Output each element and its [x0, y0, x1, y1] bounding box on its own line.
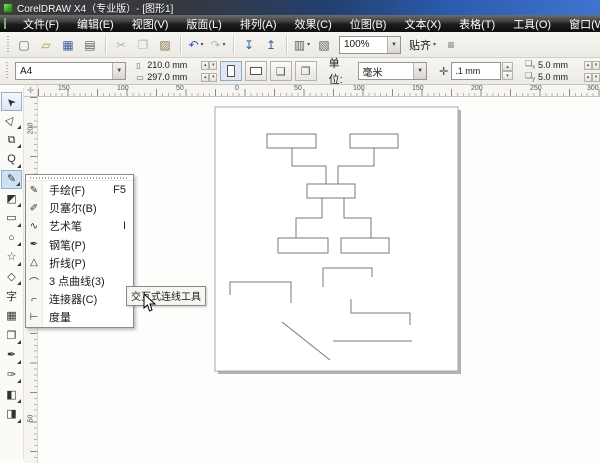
welcome-screen-button[interactable]: ▧ — [313, 34, 335, 56]
interactive-fill-tool-icon: ◨ — [6, 409, 16, 420]
nudge-offset-icon: ✛ — [439, 65, 448, 78]
pick-tool-icon: ➤ — [4, 94, 18, 108]
toolbar-separator — [233, 36, 234, 54]
tooltip-text: 交互式连线工具 — [131, 292, 201, 303]
duplicate-x-input[interactable]: 5.0 mm — [538, 60, 582, 70]
ruler-label: 50 — [176, 85, 184, 92]
menu-item-layout[interactable]: 版面(L) — [177, 15, 230, 33]
rectangle-tool-icon: ▭ — [6, 213, 16, 224]
save-icon: ▦ — [62, 39, 73, 51]
flyout-item-polyline[interactable]: △折线(P) — [26, 254, 133, 272]
property-bar-grip[interactable] — [5, 62, 10, 80]
menu-item-arrange[interactable]: 排列(A) — [231, 15, 286, 33]
polygon-tool[interactable]: ☆ — [1, 248, 22, 268]
flyout-item-shortcut: I — [123, 220, 133, 232]
flyout-item-pen[interactable]: ✒钢笔(P) — [26, 236, 133, 254]
cut-icon: ✂ — [116, 39, 126, 51]
paper-width-spinner[interactable]: ▴▾ — [201, 61, 217, 70]
ruler-label: 100 — [353, 85, 365, 92]
flyout-item-label: 度量 — [43, 309, 126, 325]
duplicate-x-icon: ❏x — [525, 59, 538, 71]
toolbar-separator — [180, 36, 181, 54]
eyedropper-tool[interactable]: ✒ — [1, 346, 22, 366]
crop-tool[interactable]: ⧉ — [1, 131, 22, 151]
flyout-corner-icon — [17, 223, 21, 227]
menu-item-tools[interactable]: 工具(O) — [504, 15, 560, 33]
curve-tools-flyout: ✎手绘(F)F5✐贝塞尔(B)∿艺术笔I✒钢笔(P)△折线(P)⌒3 点曲线(3… — [25, 174, 134, 328]
zoom-tool-icon: Q — [7, 154, 16, 165]
print-icon: ▤ — [84, 39, 95, 51]
table-tool-icon: ▦ — [6, 311, 16, 322]
paper-width-input[interactable]: 210.0 mm — [147, 60, 199, 70]
blend-tool[interactable]: ❐ — [1, 327, 22, 347]
text-tool[interactable]: 字 — [1, 287, 22, 307]
eyedropper-tool-icon: ✒ — [7, 350, 16, 361]
duplicate-x-spinner[interactable]: ▴▾ — [584, 61, 600, 70]
units-label: 单位: — [329, 55, 354, 87]
polygon-tool-icon: ☆ — [7, 252, 17, 263]
menu-item-file[interactable]: 文件(F) — [14, 15, 68, 33]
paper-height-spinner[interactable]: ▴▾ — [201, 73, 217, 82]
coreldraw-logo-icon — [3, 3, 13, 13]
toolbox: ➤▷⧉Q✎◩▭○☆◇字▦❐✒✑◧◨ — [0, 88, 24, 460]
ruler-label: 50 — [28, 412, 35, 426]
blend-tool-icon: ❐ — [7, 331, 17, 342]
ruler-label: 0 — [235, 85, 239, 92]
ruler-label: 150 — [58, 85, 70, 92]
current-page-button[interactable]: ❐ — [295, 61, 317, 81]
toolbar-separator — [286, 36, 287, 54]
chevron-down-icon[interactable]: ▾ — [223, 41, 226, 48]
flyout-item-connector[interactable]: ⌐连接器(C) — [26, 290, 133, 308]
smart-fill-tool[interactable]: ◩ — [1, 189, 22, 209]
text-tool-icon: 字 — [6, 292, 17, 303]
zoom-tool[interactable]: Q — [1, 150, 22, 170]
new-document-button[interactable]: ▢ — [13, 34, 35, 56]
flyout-item-label: 贝塞尔(B) — [43, 200, 126, 216]
export-icon: ↥ — [266, 39, 276, 51]
ruler-label: 100 — [117, 85, 129, 92]
chevron-down-icon[interactable]: ▾ — [201, 41, 204, 48]
menu-item-edit[interactable]: 编辑(E) — [68, 15, 123, 33]
pick-tool[interactable]: ➤ — [1, 92, 22, 111]
interactive-fill-tool[interactable]: ◨ — [1, 405, 22, 425]
document-icon[interactable] — [4, 18, 6, 29]
flyout-corner-icon — [17, 164, 21, 168]
artistic-media-icon: ∿ — [26, 217, 43, 235]
application-launcher-button[interactable]: ▥▾ — [291, 34, 313, 56]
menu-item-text[interactable]: 文本(X) — [395, 15, 450, 33]
toolbar-grip[interactable] — [5, 36, 10, 54]
options-button[interactable]: ≡ — [440, 34, 462, 56]
cut-button: ✂ — [110, 34, 132, 56]
duplicate-y-icon: ❏y — [525, 71, 538, 83]
connector-icon: ⌐ — [26, 290, 43, 308]
ruler-label: 150 — [412, 85, 424, 92]
drawing-page[interactable] — [215, 107, 458, 371]
nudge-offset-spinner[interactable]: ▴▾ — [502, 62, 513, 80]
units-value: 毫米 — [359, 64, 414, 79]
three-point-curve-icon: ⌒ — [26, 272, 43, 290]
new-document-icon: ▢ — [18, 39, 29, 51]
freehand-tool[interactable]: ✎ — [1, 170, 22, 190]
workspace: ➤▷⧉Q✎◩▭○☆◇字▦❐✒✑◧◨ ✛ 15010050050100150200… — [0, 85, 600, 463]
flyout-corner-icon — [17, 242, 21, 246]
ruler-origin[interactable]: ✛ — [24, 85, 38, 97]
copy-icon: ❐ — [138, 39, 149, 51]
fill-tool-icon: ◧ — [6, 390, 16, 401]
tooltip: 交互式连线工具 — [126, 286, 206, 306]
menu-item-bitmaps[interactable]: 位图(B) — [341, 15, 396, 33]
crop-tool-icon: ⧉ — [8, 135, 16, 146]
polyline-icon: △ — [26, 254, 43, 272]
ruler-label: 200 — [28, 122, 35, 136]
flyout-corner-icon — [17, 144, 21, 148]
all-pages-button[interactable]: ❏ — [270, 61, 292, 81]
flyout-corner-icon — [17, 379, 21, 383]
flyout-corner-icon — [17, 419, 21, 423]
print-button[interactable]: ▤ — [79, 34, 101, 56]
outline-tool-icon: ✑ — [7, 370, 16, 381]
bezier-icon: ✐ — [26, 199, 43, 217]
import-button[interactable]: ↧ — [238, 34, 260, 56]
chevron-down-icon[interactable]: ▾ — [307, 41, 310, 48]
paper-height-icon: ▭ — [136, 73, 147, 82]
open-button[interactable]: ▱ — [35, 34, 57, 56]
flyout-corner-icon — [17, 262, 21, 266]
flyout-item-label: 折线(P) — [43, 255, 126, 271]
flyout-item-artistic-media[interactable]: ∿艺术笔I — [26, 217, 133, 235]
flyout-item-dimension[interactable]: ⊢度量 — [26, 308, 133, 326]
pen-icon: ✒ — [26, 236, 43, 254]
flyout-corner-icon — [17, 203, 21, 207]
standard-toolbar: ▢▱▦▤✂❐▨↶▾↷▾↧↥▥▾▧100%▼贴齐▾≡ — [0, 32, 600, 58]
flyout-item-freehand[interactable]: ✎手绘(F)F5 — [26, 181, 133, 199]
flyout-corner-icon — [17, 399, 21, 403]
open-icon: ▱ — [41, 39, 50, 51]
menu-item-view[interactable]: 视图(V) — [123, 15, 178, 33]
window-title: CorelDRAW X4（专业版）- [图形1] — [17, 0, 173, 15]
menu-item-window[interactable]: 窗口(W) — [560, 15, 600, 33]
flyout-corner-icon — [17, 340, 21, 344]
ruler-label: 300 — [587, 85, 599, 92]
welcome-screen-icon: ▧ — [318, 39, 329, 51]
landscape-icon — [250, 67, 262, 75]
property-bar: A4 ▼ ▯ 210.0 mm ▴▾ ▭ 297.0 mm ▴▾ ❏ ❐ 单位:… — [0, 58, 600, 85]
chevron-down-icon[interactable]: ▼ — [112, 63, 125, 79]
flyout-item-shortcut: F5 — [113, 184, 133, 196]
cursor-arrow — [143, 293, 157, 313]
dimension-icon: ⊢ — [26, 308, 43, 326]
freehand-icon: ✎ — [26, 181, 43, 199]
flyout-corner-icon — [17, 360, 21, 364]
current-page-icon: ❐ — [301, 65, 311, 78]
ruler-origin-icon: ✛ — [27, 86, 34, 95]
landscape-button[interactable] — [245, 61, 267, 81]
zoom-level-value: 100% — [340, 39, 387, 50]
undo-icon: ↶ — [188, 39, 198, 51]
menu-item-effects[interactable]: 效果(C) — [286, 15, 341, 33]
import-icon: ↧ — [244, 39, 254, 51]
portrait-button[interactable] — [220, 61, 242, 81]
flyout-corner-icon — [17, 281, 21, 285]
flyout-item-label: 连接器(C) — [43, 291, 126, 307]
paper-dimensions: ▯ 210.0 mm ▴▾ ▭ 297.0 mm ▴▾ — [136, 60, 217, 83]
ellipse-tool[interactable]: ○ — [1, 229, 22, 249]
chevron-down-icon[interactable]: ▼ — [413, 63, 426, 79]
zoom-level-select[interactable]: 100%▼ — [339, 36, 401, 54]
smart-fill-tool-icon: ◩ — [6, 194, 16, 205]
snap-to-button[interactable]: 贴齐▾ — [405, 35, 440, 55]
horizontal-ruler[interactable]: 15010050050100150200250300 — [38, 85, 600, 97]
nudge-offset-input[interactable]: .1 mm — [451, 62, 501, 80]
menu-item-table[interactable]: 表格(T) — [450, 15, 504, 33]
paper-size-select[interactable]: A4 ▼ — [15, 62, 126, 80]
paper-width-icon: ▯ — [136, 61, 147, 70]
duplicate-distance: ❏x 5.0 mm ▴▾ ❏y 5.0 mm ▴▾ — [525, 60, 600, 83]
copy-button: ❐ — [132, 34, 154, 56]
portrait-icon — [227, 65, 235, 77]
table-tool[interactable]: ▦ — [1, 307, 22, 327]
flyout-item-label: 钢笔(P) — [43, 237, 126, 253]
basic-shapes-tool-icon: ◇ — [7, 272, 15, 283]
options-icon: ≡ — [448, 39, 455, 51]
paste-button[interactable]: ▨ — [154, 34, 176, 56]
flyout-item-label: 手绘(F) — [43, 182, 113, 198]
redo-button: ↷▾ — [207, 34, 229, 56]
ellipse-tool-icon: ○ — [8, 233, 15, 244]
titlebar[interactable]: CorelDRAW X4（专业版）- [图形1] — [0, 0, 600, 15]
flyout-corner-icon — [16, 182, 20, 186]
paper-size-value: A4 — [16, 66, 112, 77]
snap-to-label: 贴齐 — [409, 37, 431, 53]
all-pages-icon: ❏ — [276, 65, 286, 78]
units-select[interactable]: 毫米 ▼ — [358, 62, 428, 80]
toolbar-separator — [105, 36, 106, 54]
redo-icon: ↷ — [210, 39, 220, 51]
freehand-tool-icon: ✎ — [7, 174, 16, 185]
menu-bar: 文件(F)编辑(E)视图(V)版面(L)排列(A)效果(C)位图(B)文本(X)… — [0, 15, 600, 32]
shape-tool[interactable]: ▷ — [1, 111, 22, 131]
export-button[interactable]: ↥ — [260, 34, 282, 56]
flyout-item-label: 艺术笔 — [43, 218, 123, 234]
ruler-label: 250 — [530, 85, 542, 92]
flyout-item-label: 3 点曲线(3) — [43, 273, 126, 289]
basic-shapes-tool[interactable]: ◇ — [1, 268, 22, 288]
paste-icon: ▨ — [159, 39, 170, 51]
chevron-down-icon[interactable]: ▼ — [387, 37, 400, 53]
chevron-down-icon[interactable]: ▾ — [433, 41, 436, 48]
outline-tool[interactable]: ✑ — [1, 366, 22, 386]
paper-height-input[interactable]: 297.0 mm — [147, 72, 199, 82]
ruler-label: 200 — [471, 85, 483, 92]
rectangle-tool[interactable]: ▭ — [1, 209, 22, 229]
application-launcher-icon: ▥ — [294, 39, 305, 51]
duplicate-y-input[interactable]: 5.0 mm — [538, 72, 582, 82]
flyout-corner-icon — [17, 125, 21, 129]
undo-button[interactable]: ↶▾ — [185, 34, 207, 56]
duplicate-y-spinner[interactable]: ▴▾ — [584, 73, 600, 82]
ruler-label: 50 — [294, 85, 302, 92]
flyout-item-three-point-curve[interactable]: ⌒3 点曲线(3) — [26, 272, 133, 290]
fill-tool[interactable]: ◧ — [1, 385, 22, 405]
flyout-item-bezier[interactable]: ✐贝塞尔(B) — [26, 199, 133, 217]
save-button[interactable]: ▦ — [57, 34, 79, 56]
